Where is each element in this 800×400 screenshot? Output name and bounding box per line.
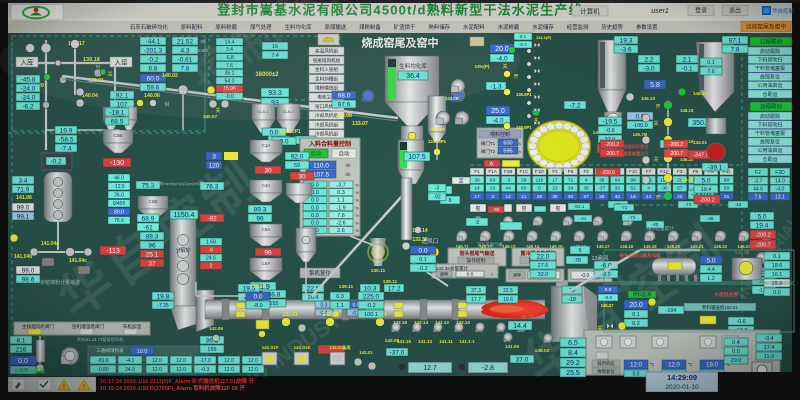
svg-text:20.0: 20.0 xyxy=(495,46,509,53)
svg-text:-4.0: -4.0 xyxy=(496,55,508,62)
svg-text:窑头电除尘器及风机: 窑头电除尘器及风机 xyxy=(619,252,661,259)
svg-text:46.0: 46.0 xyxy=(114,176,124,182)
svg-text:-0.2: -0.2 xyxy=(519,42,527,47)
svg-text:133.0P1: 133.0P1 xyxy=(516,125,532,130)
svg-text:-1.3: -1.3 xyxy=(490,83,502,90)
svg-text:-200.2: -200.2 xyxy=(669,142,683,148)
svg-text:0/400: 0/400 xyxy=(113,201,126,207)
svg-text:-4.0: -4.0 xyxy=(492,117,504,124)
svg-text:26.0: 26.0 xyxy=(114,193,124,199)
svg-text:132.1(P): 132.1(P) xyxy=(536,35,552,40)
svg-text:-12.5: -12.5 xyxy=(113,184,125,190)
svg-text:关: 关 xyxy=(502,63,507,70)
svg-text:133.0B: 133.0B xyxy=(445,96,459,101)
svg-text:-8.0: -8.0 xyxy=(604,295,613,301)
svg-text:-200.7: -200.7 xyxy=(669,151,683,157)
svg-text:133.0T: 133.0T xyxy=(431,127,444,132)
svg-text:76.6: 76.6 xyxy=(114,218,124,224)
svg-text:135.0P1: 135.0P1 xyxy=(516,92,532,97)
svg-text:68.9: 68.9 xyxy=(142,215,155,222)
svg-text:13%(P): 13%(P) xyxy=(475,64,490,69)
svg-text:80.0: 80.0 xyxy=(114,210,124,216)
svg-text:开: 开 xyxy=(513,74,518,80)
svg-text:-61: -61 xyxy=(143,224,153,231)
svg-text:0.0: 0.0 xyxy=(605,287,612,293)
svg-text:145.27: 145.27 xyxy=(601,303,614,308)
svg-text:-3: -3 xyxy=(435,186,440,192)
svg-text:25.0: 25.0 xyxy=(491,108,505,115)
svg-text:-92: -92 xyxy=(433,195,440,201)
svg-text:0.1: 0.1 xyxy=(520,34,527,39)
